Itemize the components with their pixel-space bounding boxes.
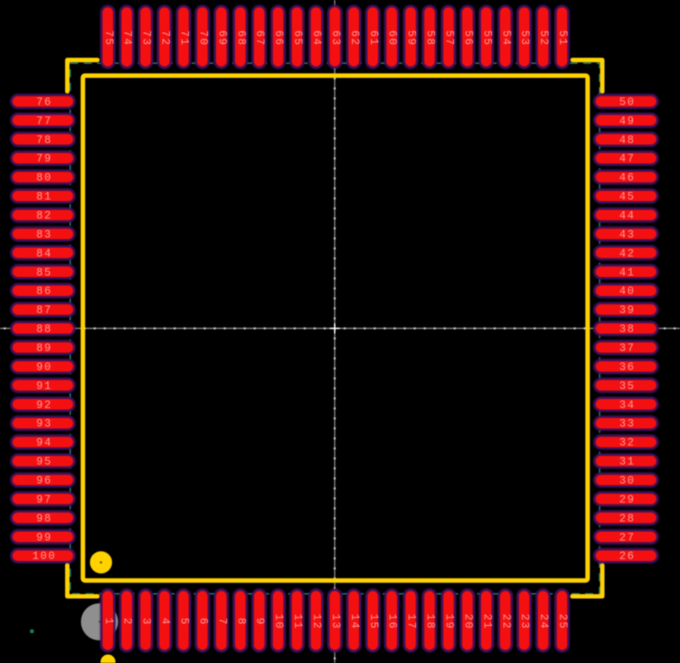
svg-text:26: 26 xyxy=(619,551,635,563)
svg-text:60: 60 xyxy=(386,30,398,46)
svg-text:87: 87 xyxy=(36,305,52,317)
svg-text:62: 62 xyxy=(348,30,360,46)
svg-text:59: 59 xyxy=(405,30,417,46)
svg-text:66: 66 xyxy=(272,30,284,46)
svg-text:76: 76 xyxy=(36,97,52,109)
svg-text:53: 53 xyxy=(518,30,530,46)
svg-text:70: 70 xyxy=(196,30,208,46)
svg-text:14: 14 xyxy=(348,614,360,630)
svg-text:21: 21 xyxy=(480,614,492,630)
svg-text:64: 64 xyxy=(310,30,322,46)
svg-text:65: 65 xyxy=(291,30,303,46)
svg-text:47: 47 xyxy=(619,154,635,166)
svg-text:13: 13 xyxy=(329,614,341,630)
svg-text:43: 43 xyxy=(619,229,635,241)
svg-text:5: 5 xyxy=(178,618,190,626)
svg-text:98: 98 xyxy=(36,513,52,525)
svg-text:63: 63 xyxy=(329,30,341,46)
svg-text:93: 93 xyxy=(36,419,52,431)
svg-text:29: 29 xyxy=(619,494,635,506)
svg-text:35: 35 xyxy=(619,381,635,393)
svg-text:48: 48 xyxy=(619,135,635,147)
svg-text:74: 74 xyxy=(121,30,133,46)
svg-text:39: 39 xyxy=(619,305,635,317)
svg-text:11: 11 xyxy=(291,614,303,630)
svg-text:88: 88 xyxy=(36,324,52,336)
svg-text:44: 44 xyxy=(619,211,635,223)
svg-text:78: 78 xyxy=(36,135,52,147)
svg-text:89: 89 xyxy=(36,343,52,355)
svg-text:77: 77 xyxy=(36,116,52,128)
svg-text:51: 51 xyxy=(556,30,568,46)
svg-text:31: 31 xyxy=(619,457,635,469)
svg-text:91: 91 xyxy=(36,381,52,393)
svg-text:83: 83 xyxy=(36,229,52,241)
svg-text:85: 85 xyxy=(36,267,52,279)
svg-text:56: 56 xyxy=(461,30,473,46)
svg-text:4: 4 xyxy=(159,618,171,626)
svg-text:72: 72 xyxy=(159,30,171,46)
svg-text:36: 36 xyxy=(619,362,635,374)
svg-text:81: 81 xyxy=(36,192,52,204)
svg-text:27: 27 xyxy=(619,532,635,544)
svg-text:50: 50 xyxy=(619,97,635,109)
svg-text:37: 37 xyxy=(619,343,635,355)
svg-text:1: 1 xyxy=(102,618,114,626)
svg-text:19: 19 xyxy=(443,614,455,630)
svg-text:6: 6 xyxy=(196,618,208,626)
svg-text:67: 67 xyxy=(253,30,265,46)
svg-text:92: 92 xyxy=(36,400,52,412)
svg-text:12: 12 xyxy=(310,614,322,630)
svg-text:3: 3 xyxy=(140,618,152,626)
svg-text:30: 30 xyxy=(619,476,635,488)
svg-text:9: 9 xyxy=(253,618,265,626)
svg-text:20: 20 xyxy=(461,614,473,630)
svg-text:57: 57 xyxy=(443,30,455,46)
svg-text:73: 73 xyxy=(140,30,152,46)
svg-text:22: 22 xyxy=(499,614,511,630)
svg-text:45: 45 xyxy=(619,192,635,204)
svg-text:52: 52 xyxy=(537,30,549,46)
svg-text:54: 54 xyxy=(499,30,511,46)
svg-text:7: 7 xyxy=(215,618,227,626)
svg-text:25: 25 xyxy=(556,614,568,630)
svg-text:23: 23 xyxy=(518,614,530,630)
svg-text:79: 79 xyxy=(36,154,52,166)
svg-text:17: 17 xyxy=(405,614,417,630)
svg-text:96: 96 xyxy=(36,476,52,488)
svg-text:49: 49 xyxy=(619,116,635,128)
svg-text:18: 18 xyxy=(424,614,436,630)
svg-text:80: 80 xyxy=(36,173,52,185)
svg-text:8: 8 xyxy=(234,618,246,626)
svg-text:24: 24 xyxy=(537,614,549,630)
svg-text:42: 42 xyxy=(619,248,635,260)
svg-text:32: 32 xyxy=(619,438,635,450)
svg-text:33: 33 xyxy=(619,419,635,431)
svg-text:69: 69 xyxy=(215,30,227,46)
svg-text:10: 10 xyxy=(272,614,284,630)
svg-text:82: 82 xyxy=(36,211,52,223)
svg-text:40: 40 xyxy=(619,286,635,298)
svg-text:16: 16 xyxy=(386,614,398,630)
svg-text:61: 61 xyxy=(367,30,379,46)
svg-text:38: 38 xyxy=(619,324,635,336)
svg-text:94: 94 xyxy=(36,438,52,450)
svg-text:46: 46 xyxy=(619,173,635,185)
svg-text:100: 100 xyxy=(32,551,56,563)
svg-text:15: 15 xyxy=(367,614,379,630)
svg-text:28: 28 xyxy=(619,513,635,525)
svg-text:99: 99 xyxy=(36,532,52,544)
svg-text:86: 86 xyxy=(36,286,52,298)
svg-text:58: 58 xyxy=(424,30,436,46)
svg-text:41: 41 xyxy=(619,267,635,279)
svg-text:95: 95 xyxy=(36,457,52,469)
svg-text:2: 2 xyxy=(121,618,133,626)
svg-text:90: 90 xyxy=(36,362,52,374)
svg-text:34: 34 xyxy=(619,400,635,412)
svg-text:97: 97 xyxy=(36,494,52,506)
svg-text:71: 71 xyxy=(178,30,190,46)
svg-text:84: 84 xyxy=(36,248,52,260)
svg-text:55: 55 xyxy=(480,30,492,46)
svg-text:68: 68 xyxy=(234,30,246,46)
svg-text:75: 75 xyxy=(102,30,114,46)
